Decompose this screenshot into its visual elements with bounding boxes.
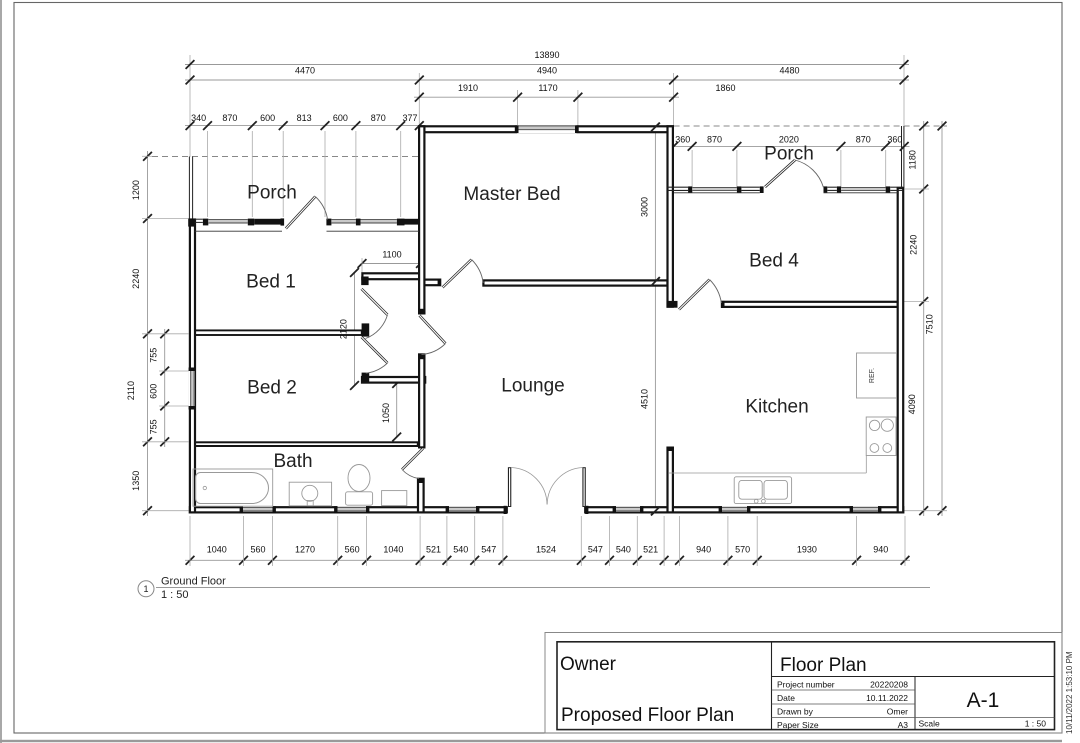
svg-text:20220208: 20220208 bbox=[870, 680, 908, 690]
svg-text:1 : 50: 1 : 50 bbox=[161, 589, 189, 601]
svg-text:870: 870 bbox=[371, 113, 386, 123]
svg-text:870: 870 bbox=[222, 113, 237, 123]
svg-text:547: 547 bbox=[481, 545, 496, 555]
svg-text:1170: 1170 bbox=[538, 83, 557, 93]
svg-text:360: 360 bbox=[887, 135, 902, 145]
svg-text:13890: 13890 bbox=[534, 50, 559, 60]
svg-text:1860: 1860 bbox=[715, 83, 735, 93]
svg-text:Paper Size: Paper Size bbox=[777, 720, 819, 730]
svg-text:Owner: Owner bbox=[560, 654, 617, 675]
svg-text:755: 755 bbox=[149, 419, 159, 434]
svg-text:4090: 4090 bbox=[907, 394, 917, 414]
svg-text:Master Bed: Master Bed bbox=[463, 184, 560, 205]
svg-text:Drawn by: Drawn by bbox=[777, 707, 814, 717]
svg-text:Bath: Bath bbox=[273, 451, 312, 472]
svg-text:940: 940 bbox=[873, 545, 888, 555]
svg-text:Bed 1: Bed 1 bbox=[246, 272, 296, 293]
svg-text:4940: 4940 bbox=[537, 66, 557, 76]
svg-text:560: 560 bbox=[345, 545, 360, 555]
svg-text:1 : 50: 1 : 50 bbox=[1025, 719, 1047, 729]
svg-text:521: 521 bbox=[643, 545, 658, 555]
svg-text:1930: 1930 bbox=[797, 545, 817, 555]
svg-text:REF.: REF. bbox=[869, 368, 876, 383]
svg-text:Porch: Porch bbox=[764, 144, 814, 165]
svg-text:755: 755 bbox=[149, 348, 159, 363]
svg-text:Omer: Omer bbox=[887, 707, 908, 717]
svg-text:7510: 7510 bbox=[925, 314, 935, 334]
svg-text:1040: 1040 bbox=[207, 545, 227, 555]
svg-text:A-1: A-1 bbox=[967, 689, 1000, 712]
svg-text:1180: 1180 bbox=[908, 150, 918, 169]
svg-text:1524: 1524 bbox=[536, 545, 556, 555]
svg-text:540: 540 bbox=[453, 545, 468, 555]
svg-text:1910: 1910 bbox=[458, 83, 478, 93]
svg-text:560: 560 bbox=[250, 545, 265, 555]
svg-text:547: 547 bbox=[588, 545, 603, 555]
svg-text:600: 600 bbox=[333, 113, 348, 123]
svg-text:A3: A3 bbox=[898, 720, 909, 730]
svg-text:570: 570 bbox=[735, 545, 750, 555]
svg-text:2240: 2240 bbox=[909, 235, 919, 255]
svg-text:1270: 1270 bbox=[295, 545, 315, 555]
svg-text:521: 521 bbox=[426, 545, 441, 555]
svg-text:4480: 4480 bbox=[779, 66, 799, 76]
svg-text:813: 813 bbox=[297, 113, 312, 123]
svg-text:377: 377 bbox=[402, 113, 417, 123]
svg-text:Date: Date bbox=[777, 693, 795, 703]
svg-text:600: 600 bbox=[149, 384, 159, 399]
svg-text:360: 360 bbox=[675, 135, 690, 145]
svg-text:2120: 2120 bbox=[338, 319, 348, 339]
svg-text:940: 940 bbox=[696, 545, 711, 555]
svg-text:Lounge: Lounge bbox=[501, 376, 564, 397]
svg-text:2240: 2240 bbox=[131, 269, 141, 289]
svg-text:Kitchen: Kitchen bbox=[745, 397, 808, 418]
svg-text:870: 870 bbox=[707, 135, 722, 145]
svg-text:10.11.2022: 10.11.2022 bbox=[866, 693, 908, 703]
svg-text:Floor Plan: Floor Plan bbox=[780, 655, 867, 676]
svg-text:600: 600 bbox=[260, 113, 275, 123]
svg-text:Ground Floor: Ground Floor bbox=[161, 576, 226, 588]
svg-text:1350: 1350 bbox=[131, 471, 141, 491]
svg-text:Bed 4: Bed 4 bbox=[749, 251, 799, 272]
svg-text:4470: 4470 bbox=[295, 66, 315, 76]
svg-text:1100: 1100 bbox=[382, 250, 401, 260]
svg-text:870: 870 bbox=[856, 135, 871, 145]
svg-text:Project number: Project number bbox=[777, 680, 835, 690]
svg-text:Porch: Porch bbox=[247, 183, 297, 204]
svg-text:3000: 3000 bbox=[640, 197, 650, 217]
svg-text:1: 1 bbox=[143, 584, 148, 594]
svg-text:1050: 1050 bbox=[381, 403, 391, 423]
svg-text:4510: 4510 bbox=[640, 389, 650, 409]
svg-text:1200: 1200 bbox=[131, 180, 141, 200]
svg-text:Scale: Scale bbox=[919, 719, 941, 729]
svg-text:10/11/2022 1:53:10 PM: 10/11/2022 1:53:10 PM bbox=[1065, 651, 1074, 734]
svg-text:2110: 2110 bbox=[126, 381, 136, 400]
svg-text:540: 540 bbox=[616, 545, 631, 555]
svg-text:Bed 2: Bed 2 bbox=[247, 378, 297, 399]
svg-text:1040: 1040 bbox=[383, 545, 403, 555]
svg-text:340: 340 bbox=[191, 113, 206, 123]
svg-text:Proposed Floor Plan: Proposed Floor Plan bbox=[561, 705, 734, 726]
